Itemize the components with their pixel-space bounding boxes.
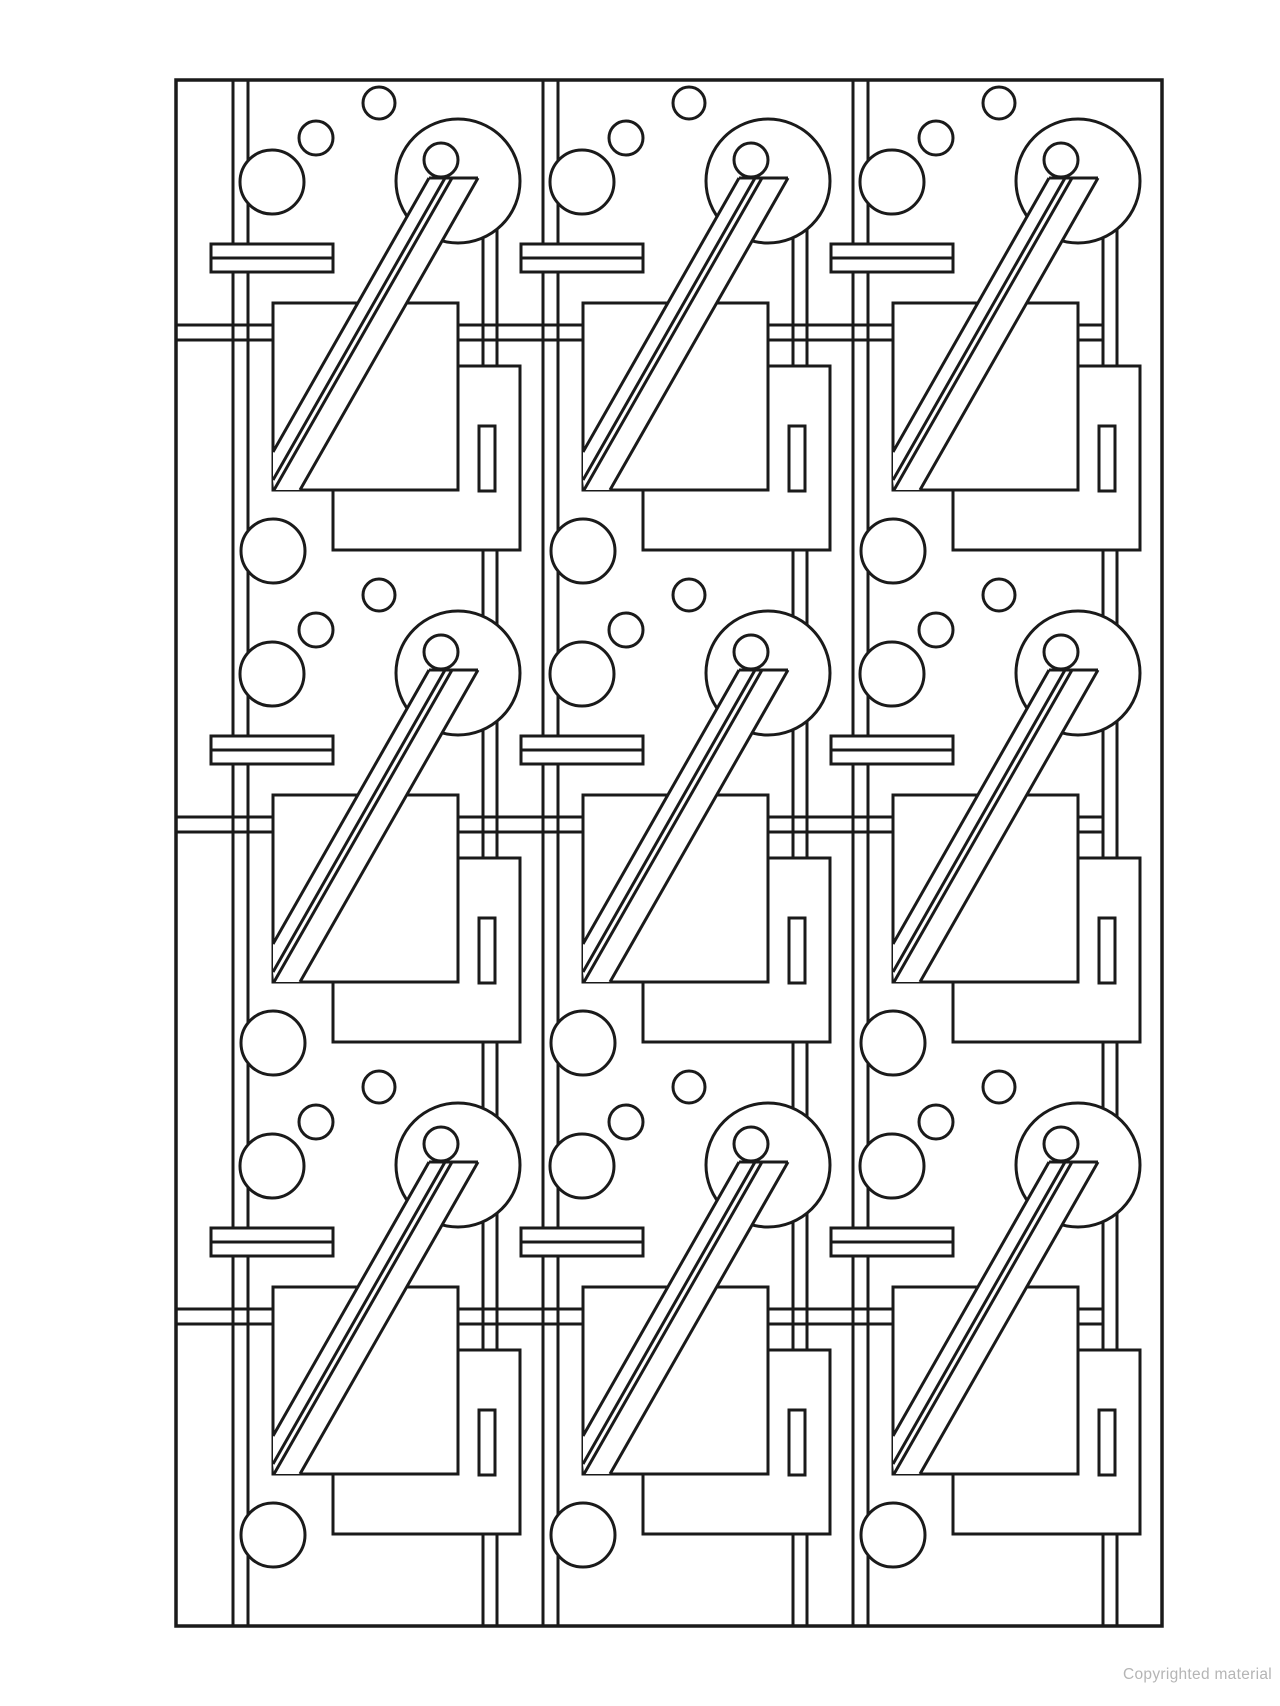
inner-circle — [734, 635, 768, 669]
medium-upper-circle — [240, 150, 304, 214]
tiny-top-circle — [673, 1071, 705, 1103]
small-circle — [919, 1105, 953, 1139]
tiny-top-circle — [363, 87, 395, 119]
slot — [479, 426, 495, 491]
medium-lower-circle — [241, 1503, 305, 1567]
slot — [1099, 918, 1115, 983]
medium-lower-circle — [241, 519, 305, 583]
tiny-top-circle — [363, 579, 395, 611]
small-circle — [299, 613, 333, 647]
tiny-top-circle — [983, 579, 1015, 611]
pattern-artwork — [0, 0, 1280, 1706]
inner-circle — [734, 143, 768, 177]
medium-upper-circle — [550, 150, 614, 214]
slot — [479, 918, 495, 983]
small-circle — [919, 613, 953, 647]
tiny-top-circle — [673, 579, 705, 611]
slot — [789, 426, 805, 491]
scanned-page: Copyrighted material — [0, 0, 1280, 1706]
medium-upper-circle — [240, 1134, 304, 1198]
medium-upper-circle — [550, 1134, 614, 1198]
medium-upper-circle — [860, 1134, 924, 1198]
slot — [479, 1410, 495, 1475]
medium-lower-circle — [551, 1503, 615, 1567]
inner-circle — [1044, 635, 1078, 669]
inner-circle — [424, 1127, 458, 1161]
tiny-top-circle — [983, 87, 1015, 119]
small-circle — [299, 1105, 333, 1139]
small-circle — [609, 121, 643, 155]
medium-upper-circle — [860, 642, 924, 706]
medium-lower-circle — [551, 519, 615, 583]
small-circle — [609, 613, 643, 647]
tiny-top-circle — [983, 1071, 1015, 1103]
tiny-top-circle — [673, 87, 705, 119]
medium-upper-circle — [550, 642, 614, 706]
slot — [789, 918, 805, 983]
inner-circle — [734, 1127, 768, 1161]
tiny-top-circle — [363, 1071, 395, 1103]
medium-lower-circle — [861, 1503, 925, 1567]
medium-lower-circle — [241, 1011, 305, 1075]
small-circle — [299, 121, 333, 155]
medium-upper-circle — [240, 642, 304, 706]
small-circle — [919, 121, 953, 155]
inner-circle — [424, 143, 458, 177]
medium-lower-circle — [861, 519, 925, 583]
inner-circle — [1044, 143, 1078, 177]
slot — [1099, 426, 1115, 491]
copyright-watermark: Copyrighted material — [1123, 1666, 1272, 1684]
medium-lower-circle — [551, 1011, 615, 1075]
inner-circle — [1044, 1127, 1078, 1161]
small-circle — [609, 1105, 643, 1139]
medium-upper-circle — [860, 150, 924, 214]
slot — [1099, 1410, 1115, 1475]
slot — [789, 1410, 805, 1475]
inner-circle — [424, 635, 458, 669]
medium-lower-circle — [861, 1011, 925, 1075]
